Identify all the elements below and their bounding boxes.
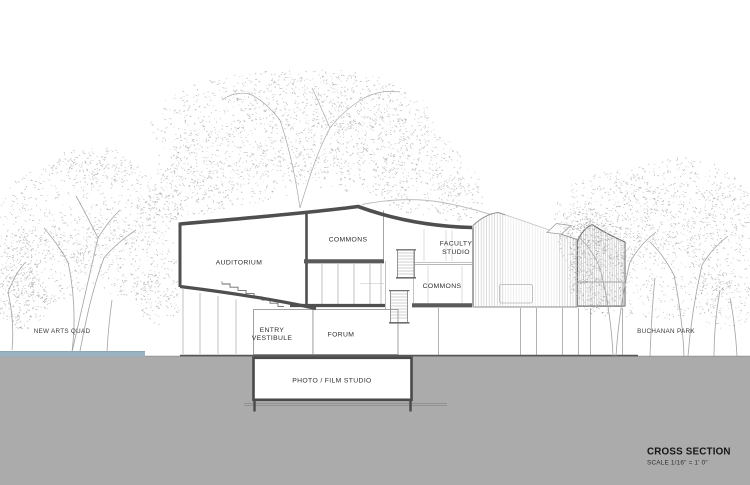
- architectural-sheet: AUDITORIUM COMMONS FACULTY STUDIO COMMON…: [0, 0, 750, 485]
- faculty-studio-label-line1: FACULTY: [440, 241, 473, 248]
- commons-lower-label: COMMONS: [423, 283, 462, 290]
- sheet-scale-note: SCALE 1/16" = 1' 0": [647, 460, 708, 467]
- forum-label: FORUM: [328, 332, 355, 339]
- buchanan-park-label: BUCHANAN PARK: [637, 328, 695, 335]
- center-tree: [136, 70, 483, 223]
- auditorium-label: AUDITORIUM: [216, 260, 262, 267]
- forum-room: [313, 310, 398, 355]
- entry-vestibule-label-line1: ENTRY: [260, 327, 285, 334]
- entry-vestibule-label-line2: VESTIBULE: [252, 335, 293, 342]
- commons-upper-label: COMMONS: [329, 237, 368, 244]
- photo-film-studio-label: PHOTO / FILM STUDIO: [292, 378, 371, 385]
- left-tree: [0, 148, 182, 352]
- cross-section-drawing: AUDITORIUM COMMONS FACULTY STUDIO COMMON…: [0, 0, 750, 485]
- faculty-studio-label-line2: STUDIO: [442, 249, 470, 256]
- water-edge: [0, 352, 145, 357]
- rear-wing-elevation: [473, 213, 577, 308]
- new-arts-quad-label: NEW ARTS QUAD: [34, 328, 91, 335]
- sheet-title: CROSS SECTION: [647, 447, 731, 458]
